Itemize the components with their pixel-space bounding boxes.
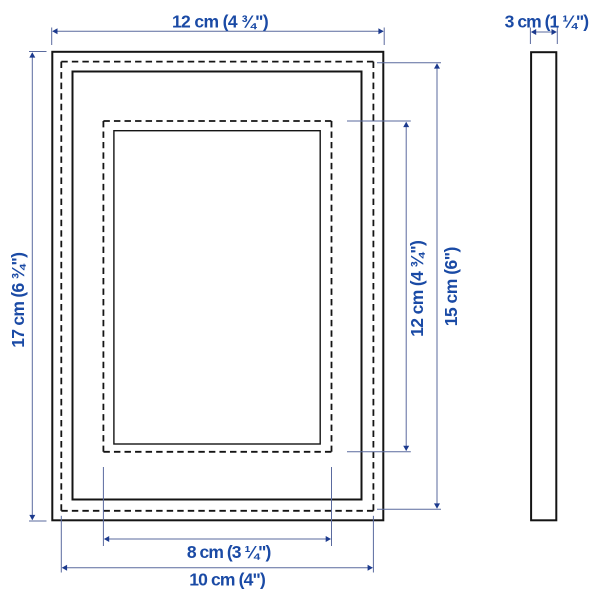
- svg-text:15 cm (6"): 15 cm (6"): [441, 247, 461, 326]
- svg-text:3 cm (1 ¼"): 3 cm (1 ¼"): [505, 11, 589, 31]
- svg-text:8 cm (3 ¼"): 8 cm (3 ¼"): [187, 542, 271, 562]
- svg-text:12 cm (4 ¾"): 12 cm (4 ¾"): [172, 11, 268, 31]
- svg-text:12 cm (4 ¾"): 12 cm (4 ¾"): [407, 241, 427, 337]
- svg-text:17 cm (6 ¾"): 17 cm (6 ¾"): [8, 253, 28, 348]
- svg-text:10 cm (4"): 10 cm (4"): [189, 570, 265, 590]
